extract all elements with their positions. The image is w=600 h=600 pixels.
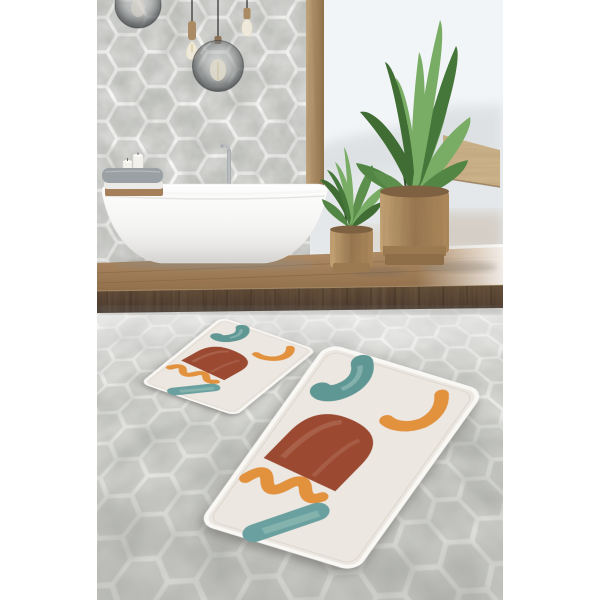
bathroom-photo [97,0,503,600]
scene-overlay [97,0,503,600]
small-pot-base [333,263,370,272]
bath-mat-set [142,318,482,570]
faucet-pipe [227,150,230,186]
small-pot-grain [330,229,373,267]
exposed-bulb [242,20,253,37]
edge-contact-shadow [97,306,503,314]
wood-post-grain [306,0,324,190]
faucet-spout-tip [220,144,224,148]
pendant-wood-socket [244,8,251,19]
small-pot-rim [330,226,373,234]
gray-towel [102,168,163,183]
screenshot-canvas [0,0,600,600]
pendant-wood-socket [188,21,196,40]
large-pot-base [385,254,444,265]
large-pot-rim [380,186,449,198]
large-pot-grain [380,191,449,253]
